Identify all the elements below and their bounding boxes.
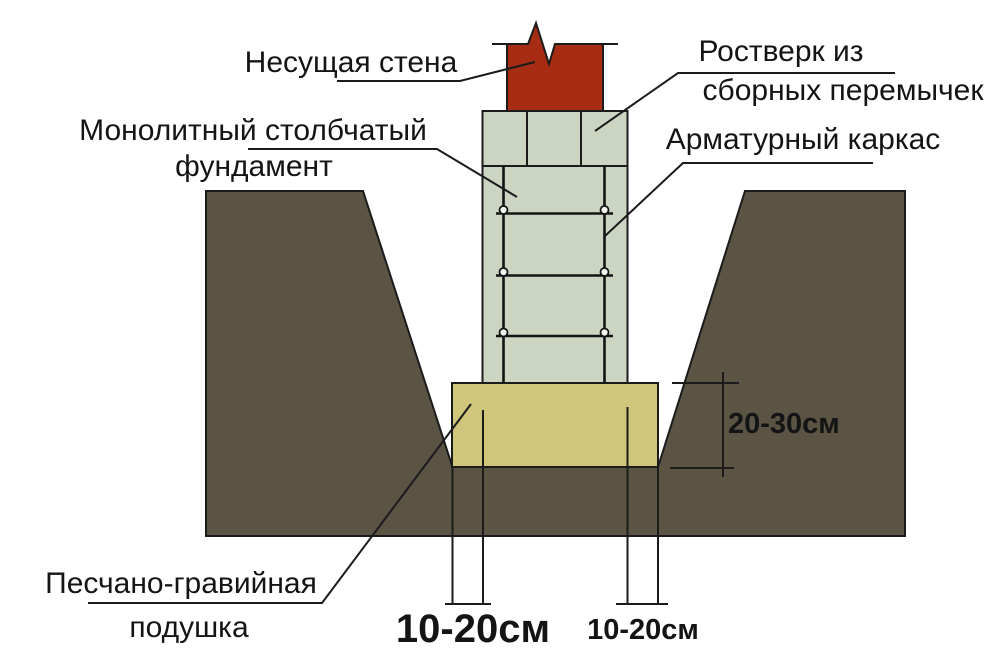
- label-grillage-line2: сборных перемычек: [703, 74, 985, 107]
- bearing-wall-block: [507, 23, 603, 111]
- dim-pad-thickness: 20-30см: [728, 408, 840, 440]
- diagram-canvas: Несущая стена Ростверк из сборных перемы…: [0, 0, 1000, 655]
- dim-right-offset: 10-20см: [587, 614, 699, 646]
- label-grillage-line1: Ростверк из: [698, 35, 863, 68]
- label-rebar-cage: Арматурный каркас: [666, 123, 941, 156]
- label-bearing-wall: Несущая стена: [245, 46, 458, 79]
- label-foundation-line2: фундамент: [175, 150, 333, 183]
- dim-left-offset: 10-20см: [396, 607, 550, 651]
- label-cushion-line1: Песчано-гравийная: [45, 567, 317, 600]
- label-foundation-line1: Монолитный столбчатый: [79, 114, 427, 147]
- foundation-diagram: Несущая стена Ростверк из сборных перемы…: [0, 0, 1000, 655]
- label-cushion-line2: подушка: [129, 611, 249, 644]
